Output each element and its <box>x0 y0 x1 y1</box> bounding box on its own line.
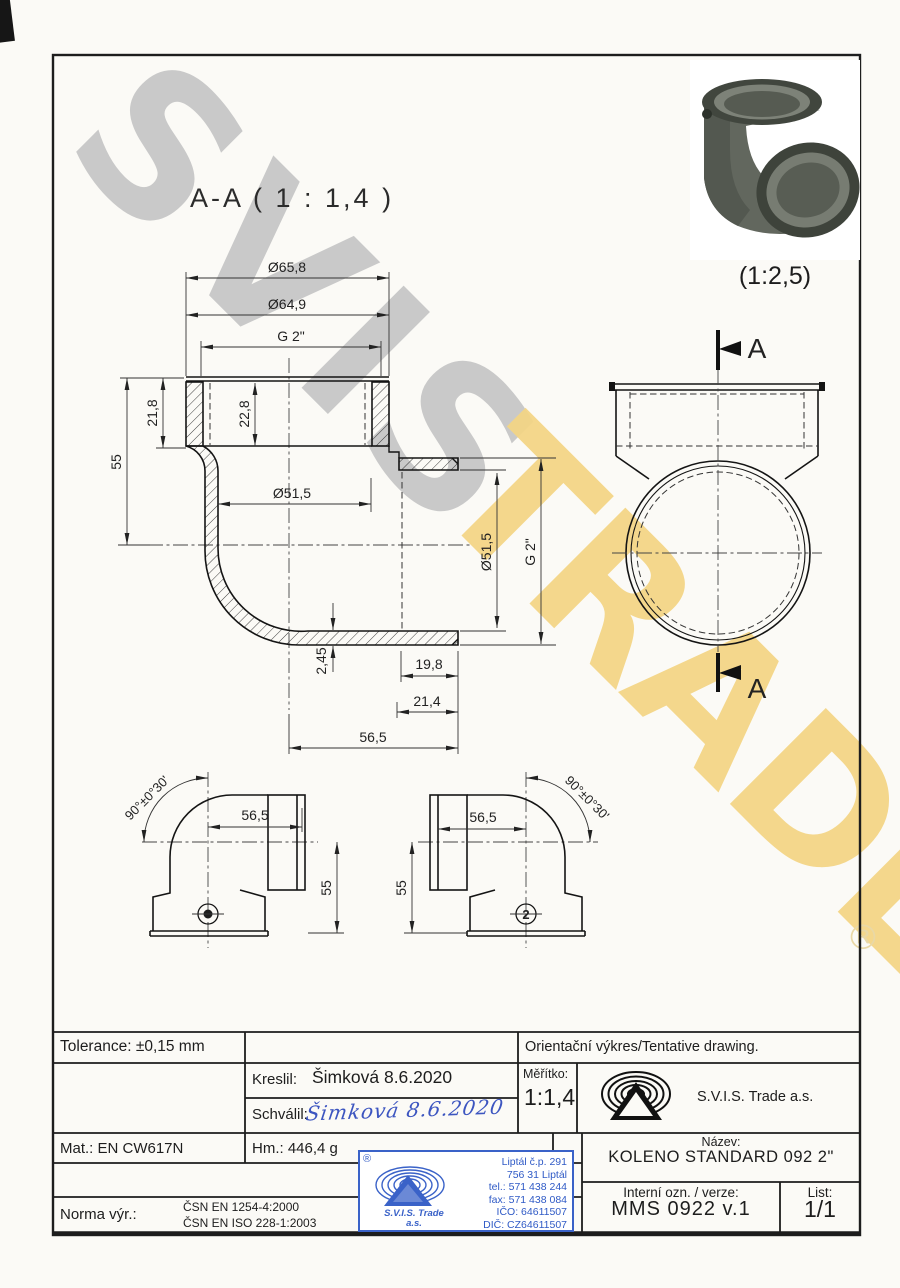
main-section-view: Ø65,8 Ø64,9 G 2" 55 21,8 22,8 Ø51,5 Ø51,… <box>108 259 556 754</box>
dim-label-outlet-bore: Ø51,5 <box>478 533 494 571</box>
company-logo <box>602 1072 670 1120</box>
nazev-value: KOLENO STANDARD 092 2" <box>582 1148 860 1167</box>
dim-label-22-8: 22,8 <box>236 400 252 427</box>
stamp-address: Liptál č.p. 291 756 31 Liptál tel.: 571 … <box>483 1156 567 1232</box>
top-view: A A <box>609 330 825 704</box>
list-value: 1/1 <box>780 1196 860 1223</box>
kreslil-value: Šimková 8.6.2020 <box>312 1067 452 1088</box>
bl-outline <box>150 795 305 936</box>
meritko-label: Měřítko: <box>523 1067 568 1081</box>
br-outline <box>430 795 585 936</box>
weight-text: Hm.: 446,4 g <box>252 1140 338 1157</box>
schvalil-label: Schválil: <box>252 1106 308 1123</box>
company-stamp: ® S.V.I.S. Trade a.s. Liptál č.p. 291 75… <box>358 1150 574 1232</box>
product-photo-render <box>690 60 860 260</box>
company-name: S.V.I.S. Trade a.s. <box>697 1089 813 1105</box>
stamp-logo-icon <box>368 1164 456 1210</box>
stamp-address-line: fax: 571 438 084 <box>483 1194 567 1207</box>
dimension-lines <box>118 272 556 754</box>
section-walls <box>186 382 458 645</box>
dim-label-55-left: 55 <box>108 454 124 470</box>
bl-55-label: 55 <box>318 880 334 896</box>
tolerance-text: Tolerance: ±0,15 mm <box>60 1038 205 1056</box>
section-label-top: A <box>748 333 767 364</box>
br-55-label: 55 <box>393 880 409 896</box>
material-text: Mat.: EN CW617N <box>60 1140 183 1157</box>
dim-label-2-45: 2,45 <box>313 647 329 674</box>
norma-line1: ČSN EN 1254-4:2000 <box>183 1200 299 1214</box>
product-photo <box>690 60 860 260</box>
dim-label-21-4: 21,4 <box>413 693 440 709</box>
dim-label-bore: Ø51,5 <box>273 485 311 501</box>
section-cut-line: A A <box>718 330 767 704</box>
section-arrow-top <box>719 341 741 356</box>
dim-label-d65-8: Ø65,8 <box>268 259 306 275</box>
bottom-right-view: 2 90°±0°30' 56,5 55 <box>393 772 612 948</box>
kreslil-label: Kreslil: <box>252 1071 297 1088</box>
dimension-labels: Ø65,8 Ø64,9 G 2" 55 21,8 22,8 Ø51,5 Ø51,… <box>108 259 538 745</box>
dim-label-56-5: 56,5 <box>359 729 386 745</box>
dim-label-g2-top: G 2" <box>277 328 305 344</box>
stamp-address-line: 756 31 Liptál <box>483 1169 567 1182</box>
top-view-hidden <box>616 392 818 634</box>
stamp-address-line: DIČ: CZ64611507 <box>483 1219 567 1232</box>
stamp-address-line: Liptál č.p. 291 <box>483 1156 567 1169</box>
tentative-drawing-text: Orientační výkres/Tentative drawing. <box>525 1039 759 1055</box>
bl-56-5-label: 56,5 <box>241 807 268 823</box>
br-56-5-label: 56,5 <box>469 809 496 825</box>
scanned-technical-drawing: { "watermark": { "word1": "SVIS", "word2… <box>0 0 900 1288</box>
photo-scale-label: (1:2,5) <box>690 262 860 291</box>
rim-mark-right <box>819 382 825 391</box>
stamp-address-line: IČO: 64611507 <box>483 1206 567 1219</box>
dim-label-21-8: 21,8 <box>144 399 160 426</box>
dim-label-outlet-g2: G 2" <box>522 538 538 566</box>
section-label-bottom: A <box>748 673 767 704</box>
meritko-value: 1:1,4 <box>524 1084 575 1111</box>
section-arrow-bottom <box>719 665 741 680</box>
nazev-label: Název: <box>582 1135 860 1149</box>
bl-dims <box>144 778 344 933</box>
bl-angle-label: 90°±0°30' <box>122 773 172 823</box>
section-view-title: A-A ( 1 : 1,4 ) <box>190 183 394 214</box>
rim-mark-left <box>609 382 615 391</box>
norma-label: Norma výr.: <box>60 1206 137 1223</box>
top-view-outline <box>612 384 822 645</box>
br-dims <box>404 778 590 933</box>
dim-label-d64-9: Ø64,9 <box>268 296 306 312</box>
dim-label-19-8: 19,8 <box>415 656 442 672</box>
norma-line2: ČSN EN ISO 228-1:2003 <box>183 1216 316 1230</box>
stamp-company-line2: a.s. <box>368 1219 460 1229</box>
bottom-left-view: 90°±0°30' 56,5 55 <box>122 772 344 948</box>
br-mold-mark: 2 <box>522 907 529 922</box>
stamp-address-line: tel.: 571 438 244 <box>483 1181 567 1194</box>
br-angle-label: 90°±0°30' <box>562 773 612 823</box>
interni-value: MMS 0922 v.1 <box>582 1198 780 1221</box>
